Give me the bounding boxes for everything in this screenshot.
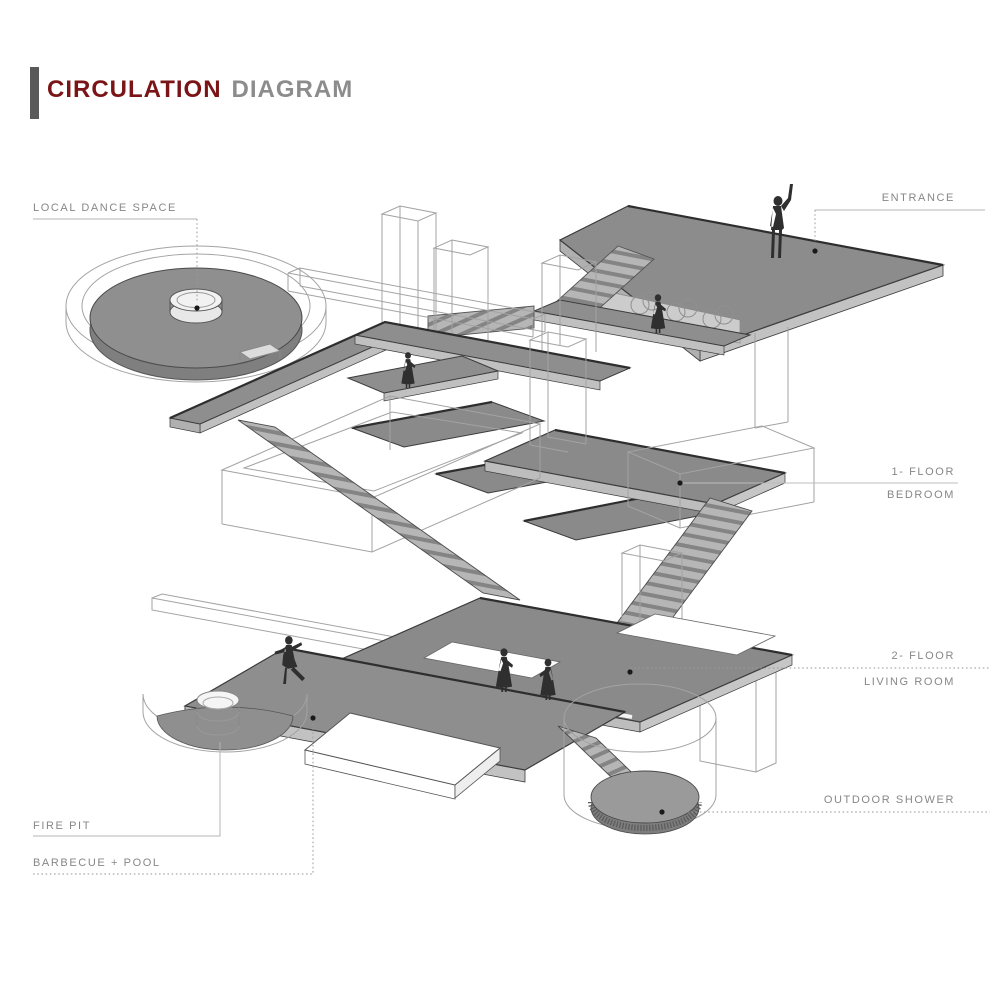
label-outdoor-shower: OUTDOOR SHOWER	[824, 794, 955, 806]
label-floor2-line2: LIVING ROOM	[864, 676, 955, 688]
local-dance-space	[66, 246, 326, 382]
stairs-floor1-to-floor2-left	[238, 420, 520, 600]
label-floor1-line1: 1- FLOOR	[891, 466, 955, 478]
circulation-diagram-page: CIRCULATIONDIAGRAM	[0, 0, 1000, 1000]
label-barbecue-pool: BARBECUE + POOL	[33, 857, 161, 869]
label-local-dance-space: LOCAL DANCE SPACE	[33, 202, 177, 214]
label-fire-pit: FIRE PIT	[33, 820, 91, 832]
label-entrance: ENTRANCE	[882, 192, 955, 204]
isometric-drawing	[0, 0, 1000, 1000]
floor1-small-platform	[348, 356, 498, 401]
entrance-platform	[428, 206, 943, 361]
label-floor2-line1: 2- FLOOR	[891, 650, 955, 662]
label-floor1-line2: BEDROOM	[887, 489, 955, 501]
